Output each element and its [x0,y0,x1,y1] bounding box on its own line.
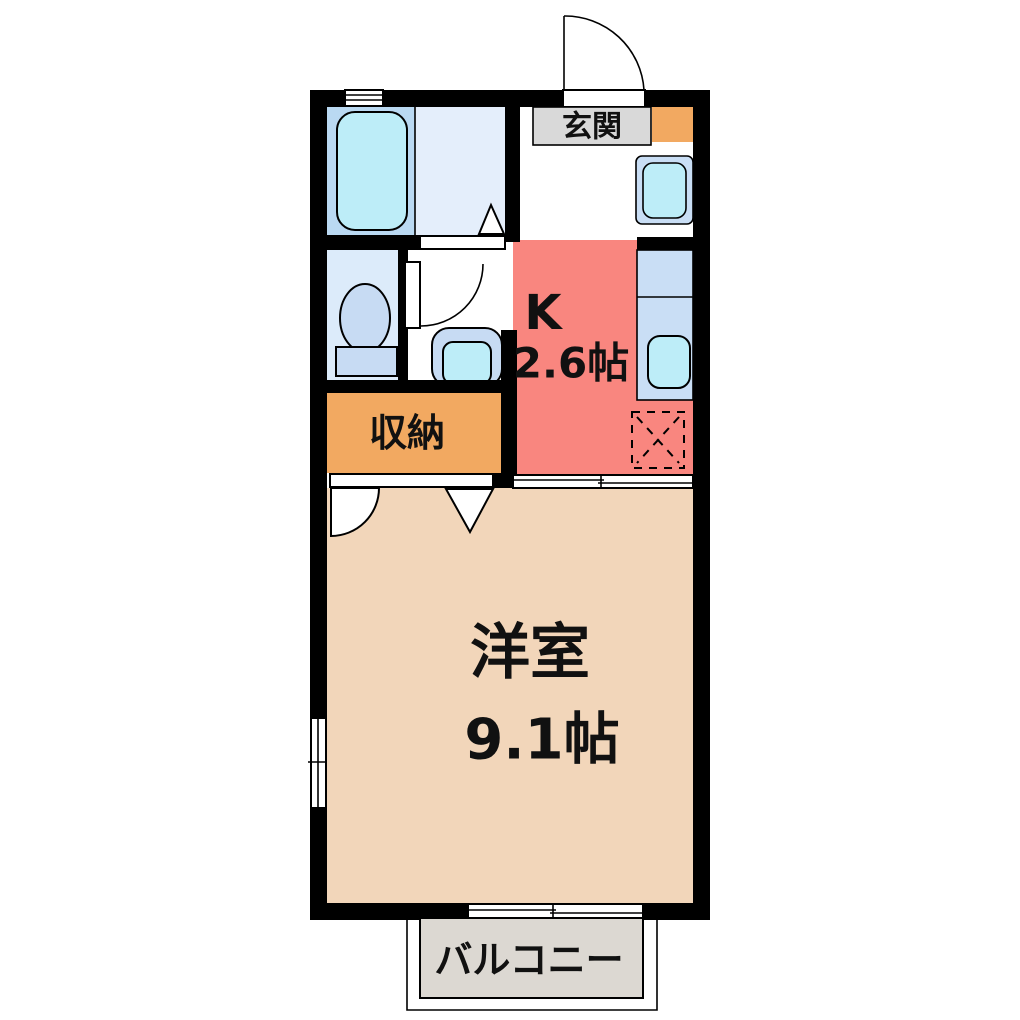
washroom-door-opening [420,236,505,249]
toilet-icon [340,284,390,352]
wall-toilet-storage [327,380,513,393]
left-window-icon [308,718,326,808]
floor-plan: 玄関 K 2.6帖 収納 洋室 9.1帖 バルコニー [0,0,1020,1020]
western-room-area [327,488,693,903]
kitchen-label: K [524,285,563,341]
wall-right [693,90,710,920]
western-room-label: 洋室 [470,618,590,688]
kitchen-size-label: 2.6帖 [513,339,629,388]
storage-door-opening [330,474,493,487]
washing-machine-tub-icon [643,163,686,218]
balcony-label: バルコニー [434,938,623,982]
shoe-cabinet-icon [652,107,693,142]
washbasin-bowl-icon [443,342,491,384]
balcony-window-icon [468,904,643,918]
bathtub-icon [337,112,407,230]
wall-entrance-washroom [505,107,520,242]
wall-bath-toilet [327,235,420,250]
wall-below-washer [637,237,693,250]
hall-door-icon [405,262,483,328]
entrance-door-opening [563,90,645,107]
kitchen-sliding-door-icon [513,475,693,488]
storage-label: 収納 [369,411,445,455]
bathroom-window-icon [345,90,383,106]
entrance-door-icon [564,16,644,90]
toilet-tank-icon [336,347,397,376]
entrance-label: 玄関 [562,110,622,145]
western-room-size-label: 9.1帖 [464,708,619,773]
kitchen-sink-icon [648,336,690,388]
